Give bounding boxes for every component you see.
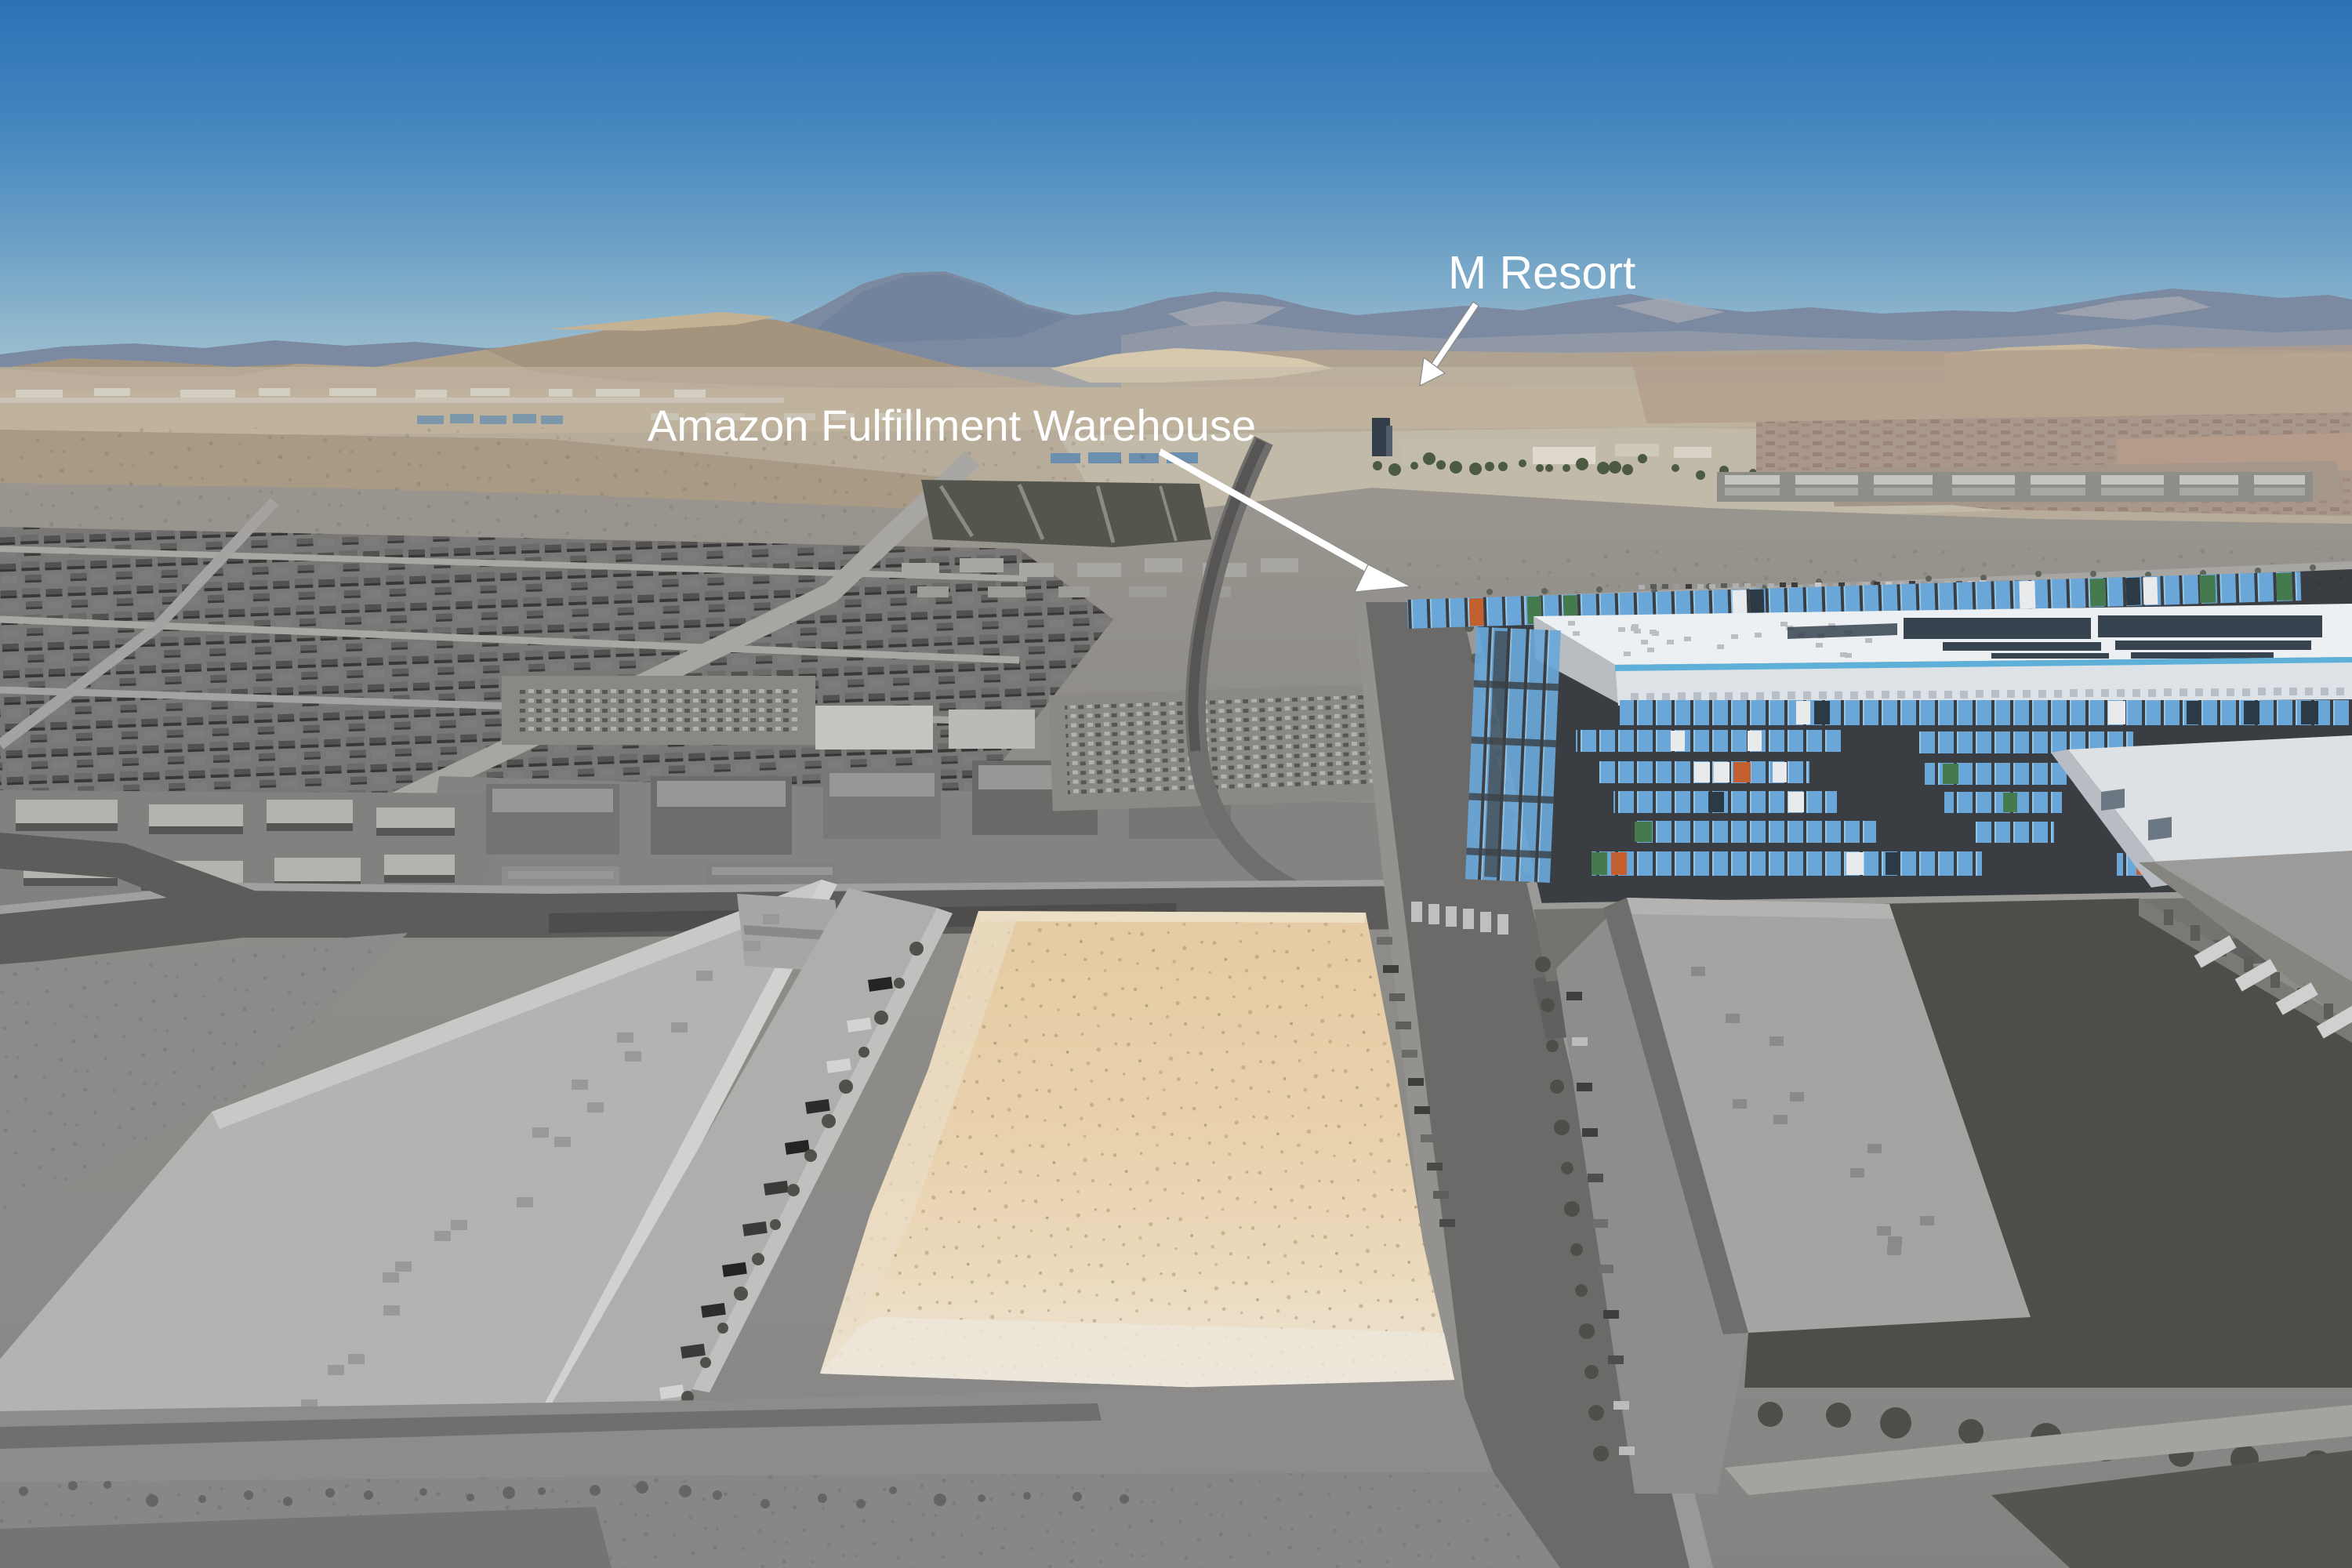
svg-text:M Resort: M Resort — [1448, 247, 1635, 299]
svg-text:Amazon Fulfillment Warehouse: Amazon Fulfillment Warehouse — [648, 401, 1256, 450]
